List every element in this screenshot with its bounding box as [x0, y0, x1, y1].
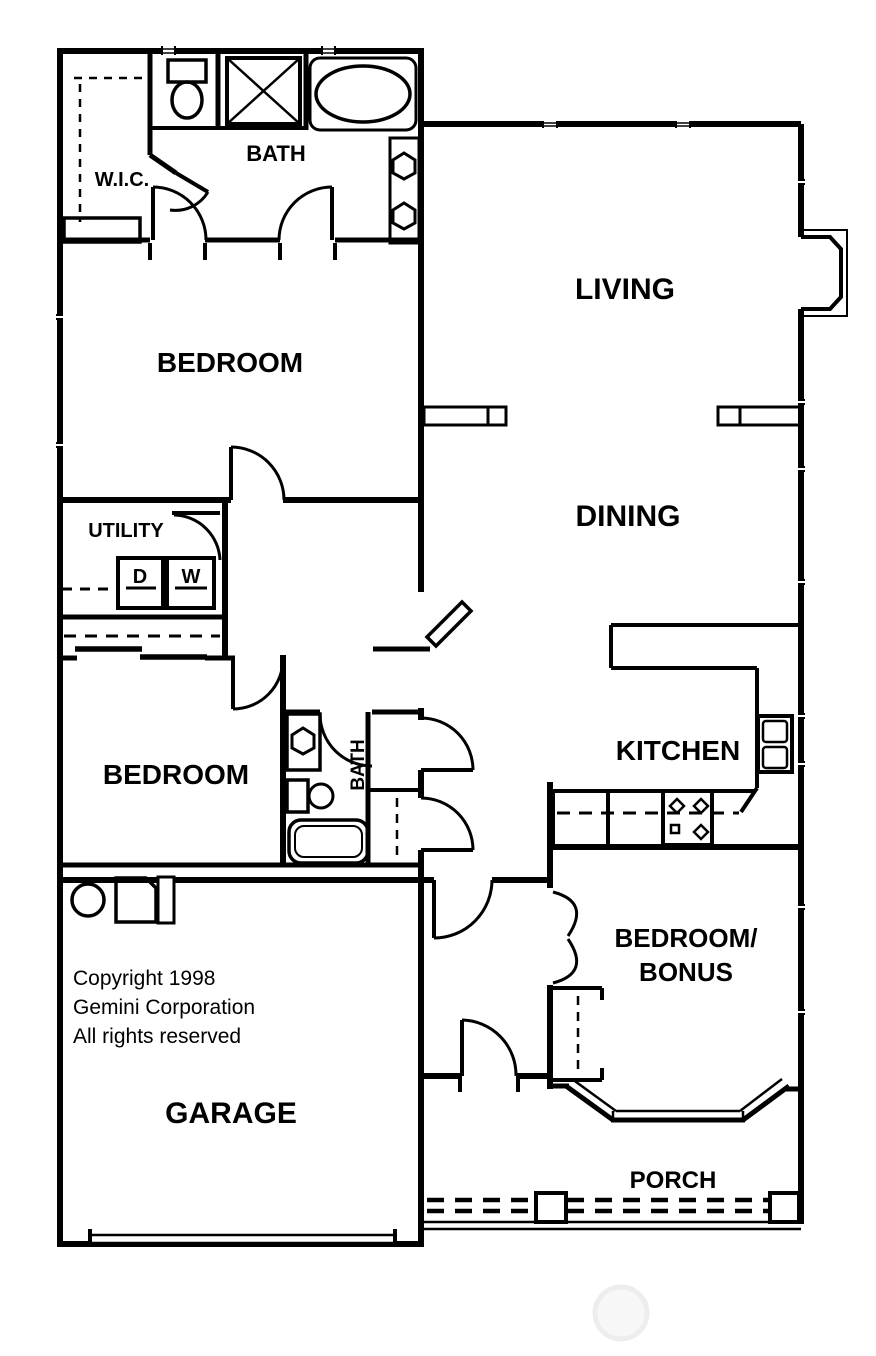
master-bath-fixtures — [64, 58, 419, 243]
porch-railing — [427, 1200, 797, 1211]
fireplace — [801, 230, 847, 316]
garage-fixtures — [72, 877, 395, 1247]
room-label-kitchen: KITCHEN — [616, 735, 740, 766]
range-cooktop — [663, 791, 712, 845]
wic-shelf-dashed — [74, 78, 146, 222]
garage-appliance — [116, 878, 156, 922]
toilet — [168, 60, 206, 118]
kitchen-sink — [758, 716, 792, 772]
room-label-wic: W.I.C. — [95, 169, 149, 191]
bathtub — [289, 820, 368, 863]
water-heater — [72, 884, 104, 916]
room-label-porch: PORCH — [630, 1167, 717, 1194]
duct-chase — [158, 877, 174, 923]
bay-window — [566, 1079, 789, 1120]
toilet — [287, 780, 333, 812]
room-label-bedroom-second: BEDROOM — [103, 759, 249, 790]
room-label-garage: GARAGE — [165, 1097, 297, 1130]
floor-plan-canvas: W.I.C. BATH BEDROOM LIVING DINING UTILIT… — [0, 0, 876, 1356]
room-label-dining: DINING — [576, 500, 681, 533]
room-label-bath-second: BATH — [348, 739, 369, 790]
room-label-living: LIVING — [575, 273, 675, 306]
copyright-line3: All rights reserved — [73, 1025, 241, 1048]
angled-door-leaf — [427, 602, 471, 646]
room-label-utility: UTILITY — [88, 520, 164, 542]
porch-edge — [423, 1222, 801, 1229]
doors — [75, 173, 577, 1092]
cased-opening — [424, 407, 800, 425]
room-label-bath-master: BATH — [246, 141, 305, 166]
railing-post — [770, 1193, 799, 1222]
railing-post — [536, 1193, 566, 1222]
watermark-circle — [595, 1287, 647, 1339]
vanity — [287, 714, 320, 770]
copyright-line1: Copyright 1998 — [73, 967, 215, 990]
garage-door — [90, 1235, 395, 1243]
copyright-line2: Gemini Corporation — [73, 996, 255, 1019]
sliding-closet-doors — [75, 649, 207, 657]
room-label-bedroom-master: BEDROOM — [157, 347, 303, 378]
room-label-bonus-line2: BONUS — [639, 957, 733, 987]
double-vanity — [390, 138, 419, 243]
bonus-room-details — [566, 996, 789, 1120]
room-label-bonus-line1: BEDROOM/ — [615, 923, 758, 953]
dryer-label: D — [133, 566, 147, 588]
shower — [227, 58, 300, 124]
porch-details — [423, 1193, 801, 1229]
washer-label: W — [182, 566, 201, 588]
bathtub — [310, 58, 416, 130]
floor-plan: W.I.C. BATH BEDROOM LIVING DINING UTILIT… — [0, 0, 876, 1356]
